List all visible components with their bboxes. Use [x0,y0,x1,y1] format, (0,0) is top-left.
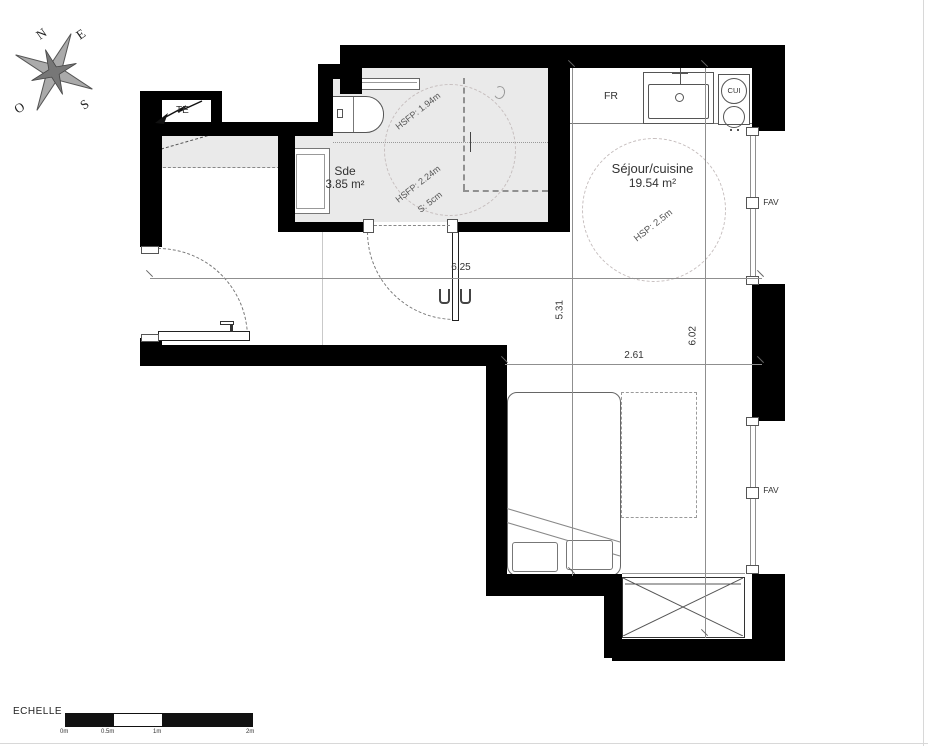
door-frame-mark [363,219,374,233]
faucet-icon [680,66,681,84]
room-label-sejour: Séjour/cuisine 19.54 m² [580,162,725,191]
compass-s: S [77,96,92,112]
door-handle [439,289,450,304]
dimension-label-living-height: 5.31 [554,292,566,328]
scale-bar-segment [114,714,162,726]
furniture-ghost-outline [621,392,697,518]
window-sill-mark [746,127,759,136]
compass-rose: N E S O [4,8,108,128]
soffit-dashed-edge [463,78,465,190]
wall [752,574,785,661]
wall [140,345,507,366]
wall [752,284,785,421]
door-frame-mark [141,246,159,254]
cooktop-label: CUI [728,86,741,95]
window-plane-line [622,573,745,574]
toilet-flush-button [337,109,343,118]
wall [548,45,570,232]
cooktop-dot [737,129,739,131]
room-area: 19.54 m² [580,177,725,191]
pillow [566,540,613,570]
door-threshold-line [374,225,450,226]
bathroom-door-leaf [452,232,459,321]
electrical-panel-label: TE [176,105,189,117]
sink-drain [675,93,684,102]
dimension-line [150,278,762,279]
wall [486,574,622,596]
scale-tick: 0.5m [101,729,114,736]
soffit-tick [470,132,471,152]
window-label: FAV [758,198,784,208]
wall [486,345,507,596]
scale-bar-segment [66,714,114,726]
scale-tick: 2m [246,729,254,736]
cooktop-dot [730,129,732,131]
page-border [923,0,924,746]
scale-label: ECHELLE [13,706,62,718]
balcony-x-icon [623,578,743,636]
page-border [0,743,928,744]
zone-entry-corridor [153,136,295,168]
dimension-line [705,68,706,638]
corridor-edge-line [153,167,295,168]
soffit-dashed-edge [463,190,548,192]
wall [211,91,222,127]
pillow [512,542,558,572]
room-name: Séjour/cuisine [580,162,725,177]
entry-door-leaf [158,331,250,341]
floor-plan: CUI [0,0,928,746]
compass-o: O [11,99,27,117]
compass-e: E [73,26,88,43]
room-label-sde: Sde 3.85 m² [300,165,390,192]
room-area: 3.85 m² [300,179,390,192]
scale-tick: 1m [153,729,161,736]
wall [295,222,373,232]
partition-face-line [322,232,323,345]
dimension-line [572,68,573,576]
scale-bar-segment [162,714,252,726]
cooktop-burner: CUI [721,78,747,104]
window-sill-mark [746,417,759,426]
faucet-icon [672,73,688,74]
scale-tick: 0m [60,729,68,736]
door-handle [230,324,233,332]
compass-n: N [33,24,50,42]
dimension-label-height: 6.02 [687,318,699,354]
toilet [332,96,384,133]
window-label: FAV [758,486,784,496]
balcony-box [622,577,745,638]
dimension-tick [146,270,153,277]
dimension-line [505,364,762,365]
scale-bar [65,713,253,727]
ceiling-break-line [333,142,548,143]
window-sill-mark [746,565,759,574]
door-frame-mark [447,219,458,233]
room-name: Sde [300,165,390,179]
door-frame-mark [141,334,159,342]
wall [752,45,785,131]
cooktop-burner [723,106,745,128]
door-handle [460,289,471,304]
dimension-label-width: 6.25 [442,262,480,274]
dimension-label-living-width: 2.61 [616,350,652,362]
wall [278,122,295,232]
toilet-tank-line [353,97,354,132]
fridge-label: FR [598,90,624,102]
